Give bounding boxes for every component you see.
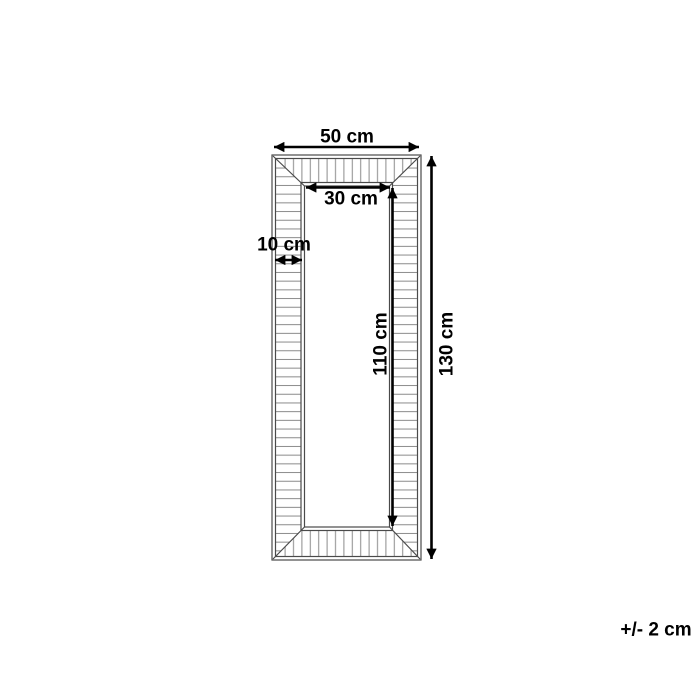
- frame-hatch-left: [276, 159, 302, 557]
- outer-height-dimension-label: 130 cm: [437, 312, 458, 376]
- dimension-annotations: 50 cm 30 cm 10 cm 110 cm 130 cm +/- 2 cm: [257, 127, 692, 641]
- inner-height-dimension-label: 110 cm: [371, 312, 392, 375]
- product-dimension-diagram: 50 cm 30 cm 10 cm 110 cm 130 cm +/- 2 cm: [0, 0, 700, 700]
- frame-width-dimension-label: 10 cm: [257, 235, 311, 256]
- mirror-frame: [272, 155, 421, 560]
- outer-width-dimension-label: 50 cm: [320, 127, 374, 148]
- inner-width-dimension-label: 30 cm: [324, 189, 378, 210]
- tolerance-label: +/- 2 cm: [620, 620, 691, 641]
- frame-hatch-right: [393, 159, 418, 557]
- mirror-dimension-drawing: 50 cm 30 cm 10 cm 110 cm 130 cm +/- 2 cm: [0, 0, 700, 700]
